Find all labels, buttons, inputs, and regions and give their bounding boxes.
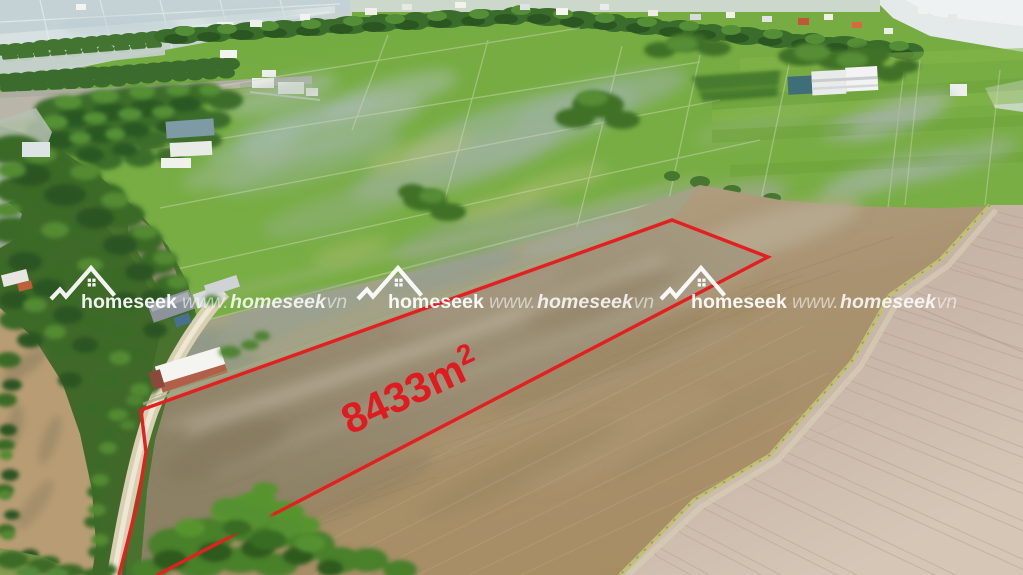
svg-text:homeseek: homeseek (537, 291, 634, 313)
svg-text:www.: www. (182, 291, 229, 313)
svg-text:homeseek: homeseek (230, 291, 327, 313)
svg-text:www.: www. (489, 291, 536, 313)
svg-text:homeseek: homeseek (388, 291, 484, 313)
svg-text:homeseek: homeseek (840, 291, 937, 313)
svg-text:homeseek: homeseek (691, 291, 787, 313)
svg-text:.vn: .vn (628, 291, 654, 313)
svg-text:.vn: .vn (931, 291, 957, 313)
svg-text:homeseek: homeseek (81, 291, 177, 313)
svg-text:www.: www. (792, 291, 839, 313)
svg-text:.vn: .vn (321, 291, 347, 313)
